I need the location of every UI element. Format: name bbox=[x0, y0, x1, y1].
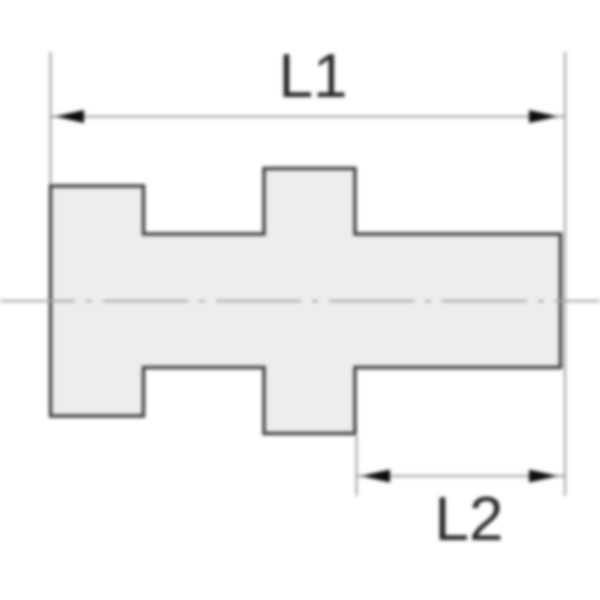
svg-text:L2: L2 bbox=[435, 485, 504, 554]
svg-text:L1: L1 bbox=[279, 42, 348, 111]
